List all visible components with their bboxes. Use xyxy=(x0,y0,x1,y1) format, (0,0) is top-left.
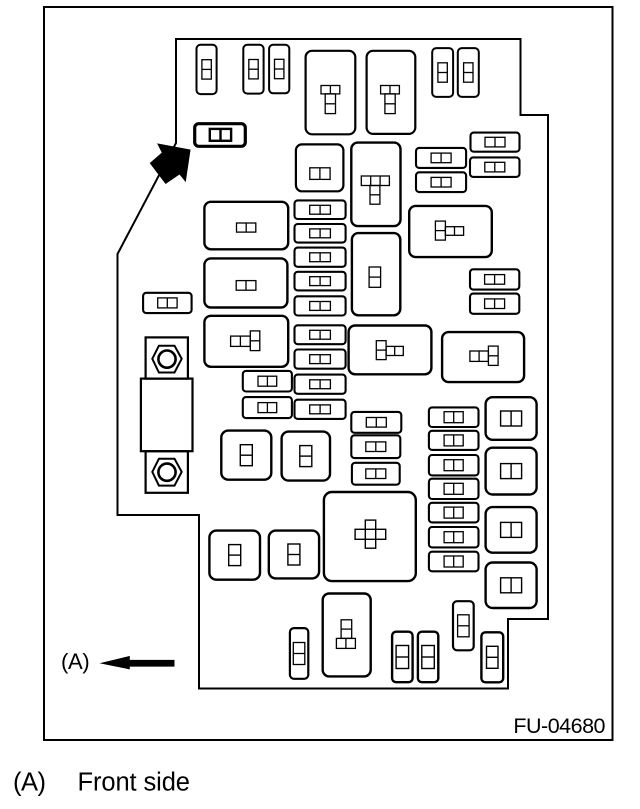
svg-text:FU-04680: FU-04680 xyxy=(513,714,605,738)
svg-text:(A): (A) xyxy=(13,769,46,797)
svg-text:Front side: Front side xyxy=(78,769,190,797)
svg-text:(A): (A) xyxy=(61,649,89,674)
